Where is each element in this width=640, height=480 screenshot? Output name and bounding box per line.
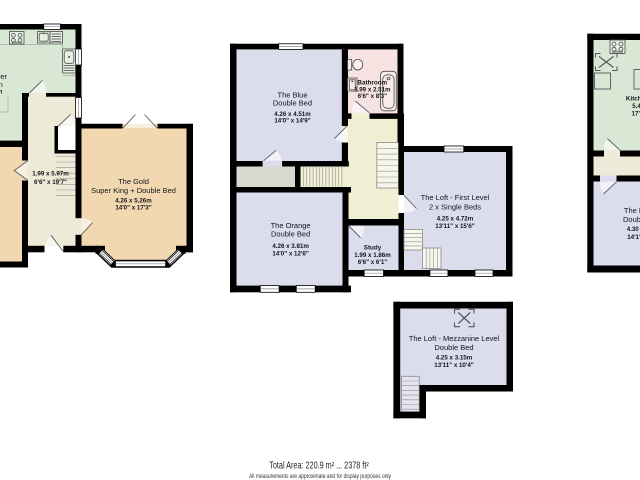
svg-text:13'11" x 15'6": 13'11" x 15'6" (435, 223, 475, 230)
svg-text:Kitchen: Kitchen (0, 80, 3, 89)
svg-text:4.26 x 3.81m: 4.26 x 3.81m (272, 243, 309, 250)
svg-text:6'6" x 8'3": 6'6" x 8'3" (358, 93, 388, 100)
svg-text:Double Bed: Double Bed (273, 99, 312, 108)
svg-text:4.25 x 4.72m: 4.25 x 4.72m (437, 216, 474, 223)
svg-text:4.30 x 3.40m: 4.30 x 3.40m (627, 226, 640, 233)
svg-text:1.99 x 1.86m: 1.99 x 1.86m (354, 252, 391, 259)
svg-text:14'0" x 17'3": 14'0" x 17'3" (115, 205, 151, 212)
svg-text:5.43 x 4.55m: 5.43 x 4.55m (632, 103, 640, 110)
svg-text:17'10" x 14'11": 17'10" x 14'11" (632, 110, 640, 117)
svg-text:14'0" x 12'6": 14'0" x 12'6" (272, 250, 308, 257)
svg-text:The Gold: The Gold (118, 177, 149, 186)
svg-text:Total Area: 220.9 m² ... 2378: Total Area: 220.9 m² ... 2378 ft² (269, 461, 369, 472)
svg-text:The Brown: The Brown (624, 206, 640, 215)
svg-text:Double Bed: Double Bed (434, 343, 473, 352)
svg-text:14'1" x 11'2": 14'1" x 11'2" (627, 234, 640, 241)
svg-text:4.25 x 3.15m: 4.25 x 3.15m (436, 355, 473, 362)
svg-text:All measurements are approxima: All measurements are approximate and for… (249, 473, 392, 480)
svg-text:14'0" x 14'9": 14'0" x 14'9" (274, 118, 310, 125)
svg-text:6'6" x 6'1": 6'6" x 6'1" (358, 259, 388, 266)
svg-text:4.26 x 5.26m: 4.26 x 5.26m (115, 198, 152, 205)
svg-text:13'11" x 10'4": 13'11" x 10'4" (434, 362, 474, 369)
svg-text:6'6" x 19'7": 6'6" x 19'7" (34, 179, 67, 186)
svg-text:The Loft - Mezzanine Level: The Loft - Mezzanine Level (409, 334, 500, 343)
svg-text:Double Bed: Double Bed (271, 230, 310, 239)
svg-text:Bathroom: Bathroom (357, 80, 387, 87)
svg-text:Study: Study (364, 245, 382, 252)
svg-text:2 x Single Beds: 2 x Single Beds (429, 203, 481, 212)
svg-text:The Loft - First Level: The Loft - First Level (421, 193, 490, 202)
svg-text:1.99 x 5.97m: 1.99 x 5.97m (32, 171, 69, 178)
svg-text:Kitchen: Kitchen (626, 96, 640, 103)
svg-text:Double Bed: Double Bed (623, 215, 640, 224)
svg-text:Super King + Double Bed: Super King + Double Bed (91, 186, 176, 195)
